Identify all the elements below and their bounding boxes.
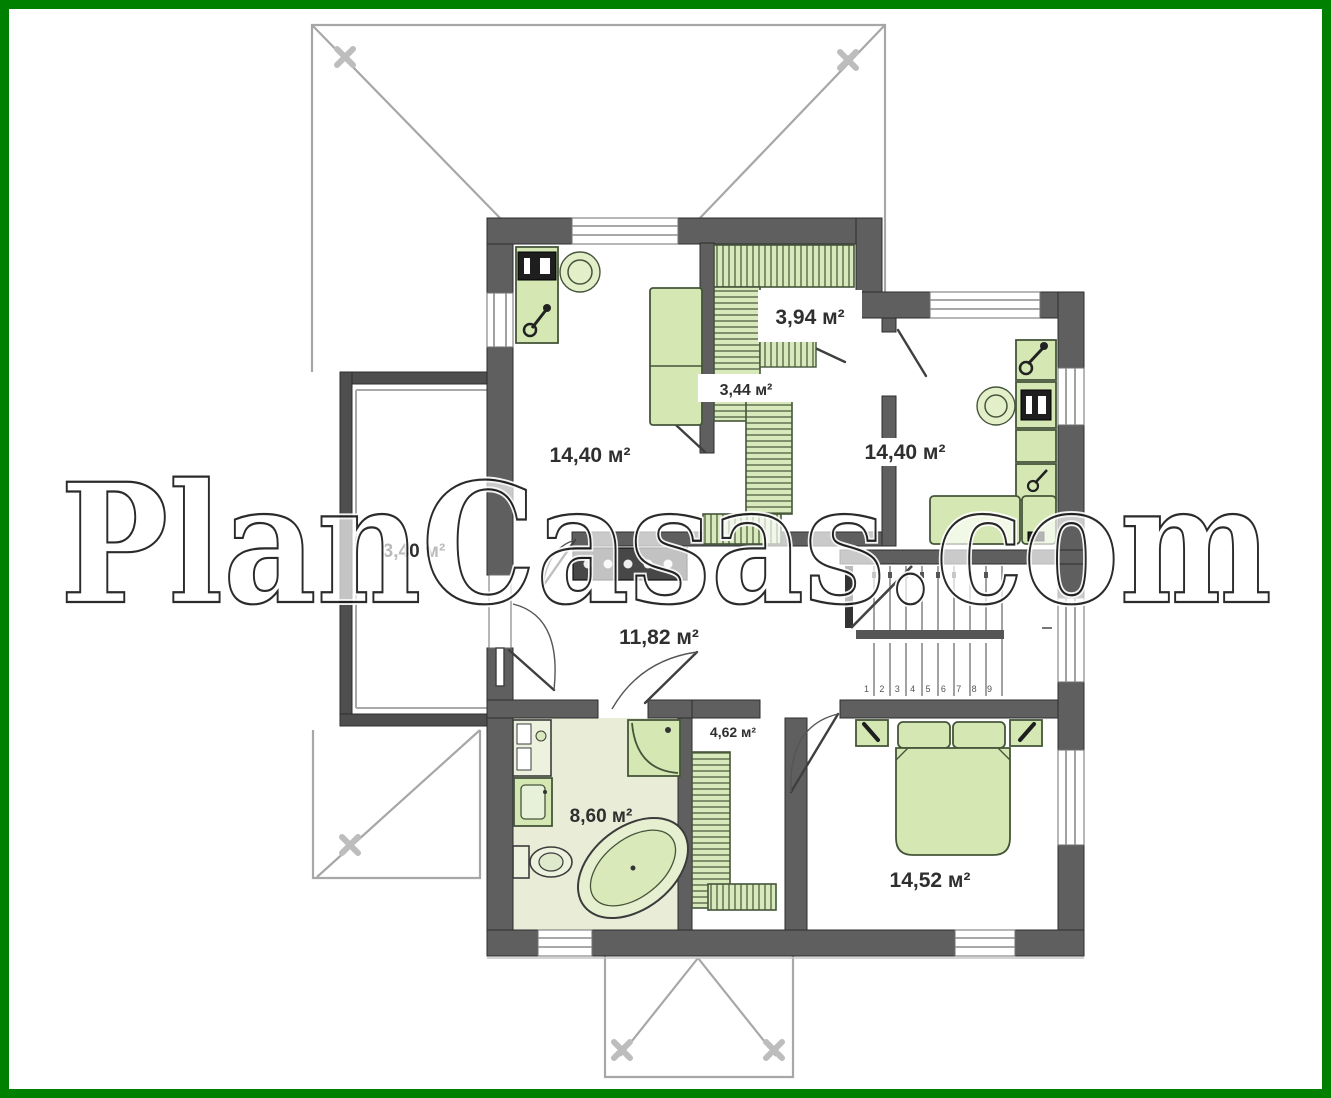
room-label-bedroom-bottom: 14,52 м² xyxy=(890,869,971,892)
wardrobe-room-furniture xyxy=(692,752,776,910)
window xyxy=(487,293,513,347)
office-chair-icon xyxy=(977,387,1015,425)
window xyxy=(955,930,1015,956)
window xyxy=(572,218,678,244)
office-chair-icon xyxy=(560,252,600,292)
window xyxy=(930,292,1040,318)
desk-icon xyxy=(1016,340,1056,428)
pillow-icon xyxy=(898,722,950,748)
window xyxy=(1058,368,1084,425)
shower-icon xyxy=(628,720,680,776)
bed-icon xyxy=(896,722,1010,855)
pillow-icon xyxy=(953,722,1005,748)
bedroom-bottom-furniture xyxy=(856,720,1042,855)
window xyxy=(538,930,592,956)
window xyxy=(1058,750,1084,845)
wardrobe-icon xyxy=(760,341,816,367)
room-label-closet: 3,44 м² xyxy=(720,382,773,399)
room-label-bathroom: 8,60 м² xyxy=(570,806,633,827)
roof-marker-icon xyxy=(337,49,856,68)
roof-marker-icon xyxy=(614,1042,782,1058)
sofa-icon xyxy=(650,288,702,425)
watermark: PlanCasas.com PlanCasas.com xyxy=(60,447,1272,641)
room-label-wardrobe: 4,62 м² xyxy=(710,724,756,740)
room-label-walk-in-closet: 3,94 м² xyxy=(775,306,844,329)
sink-icon xyxy=(513,720,551,776)
desk-icon xyxy=(516,247,558,343)
toilet-icon xyxy=(513,846,572,878)
bedroom-top-left-furniture xyxy=(516,247,702,425)
wardrobe-icon xyxy=(714,245,854,287)
washing-machine-icon xyxy=(514,778,552,826)
wardrobe-icon xyxy=(708,884,776,910)
watermark-outline: PlanCasas.com xyxy=(60,447,1272,641)
floor-plan-drawing: 1 2 3 4 5 6 7 8 9 xyxy=(9,9,1322,1089)
plan-page: 1 2 3 4 5 6 7 8 9 xyxy=(0,0,1331,1098)
roof-marker-icon xyxy=(342,837,358,853)
stair-step-numbers: 1 2 3 4 5 6 7 8 9 xyxy=(864,684,998,694)
